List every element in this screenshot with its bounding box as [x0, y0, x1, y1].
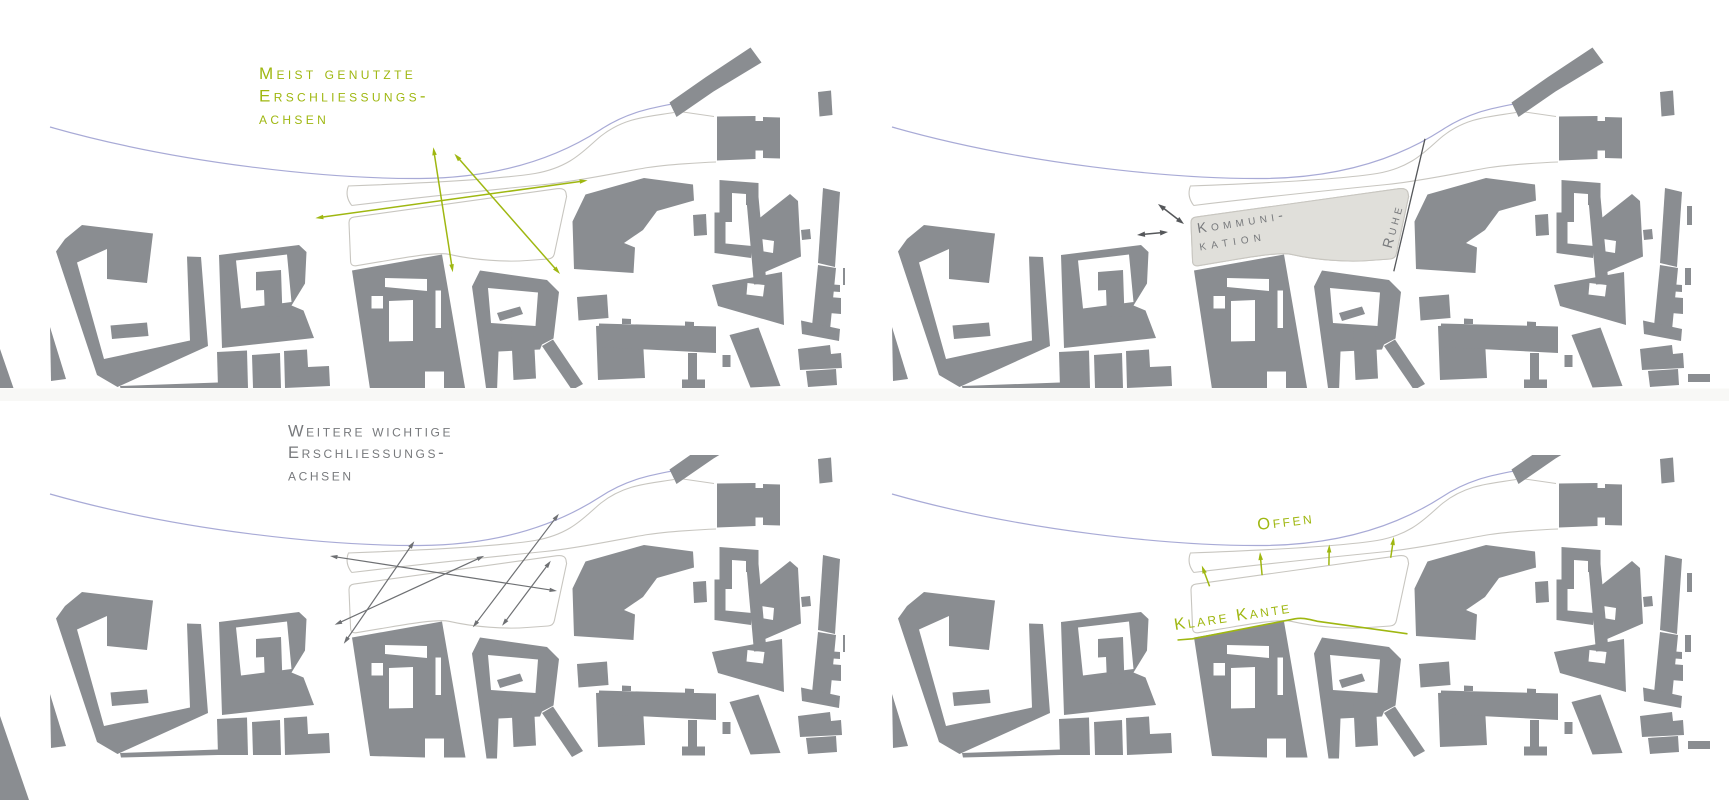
- svg-text:Erschliessungs-: Erschliessungs-: [288, 444, 446, 462]
- svg-text:achsen: achsen: [288, 467, 354, 485]
- svg-text:Erschliessungs-: Erschliessungs-: [259, 87, 429, 106]
- svg-text:Meist genutzte: Meist genutzte: [259, 64, 416, 83]
- svg-text:achsen: achsen: [259, 109, 329, 128]
- svg-text:Weitere wichtige: Weitere wichtige: [288, 423, 453, 441]
